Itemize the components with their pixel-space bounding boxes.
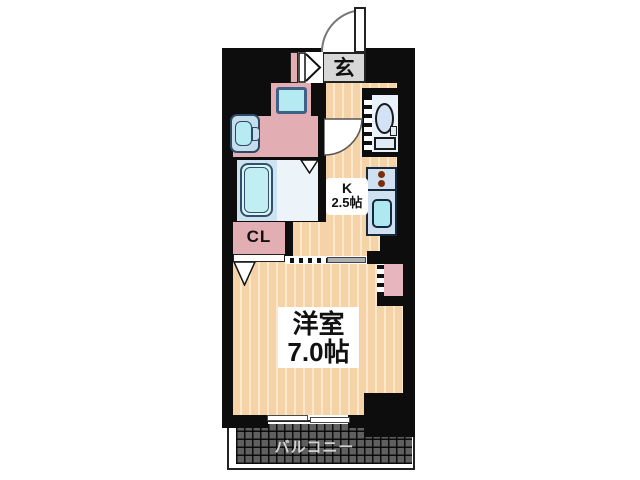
window-pane-right bbox=[310, 417, 350, 423]
wash-basin-bowl bbox=[235, 121, 252, 146]
sliding-door-panel bbox=[327, 257, 366, 263]
pillar bbox=[364, 393, 415, 437]
fridge-open-side bbox=[377, 264, 384, 296]
washroom-jamb bbox=[290, 52, 298, 83]
bottom-wall-left bbox=[222, 415, 268, 428]
toilet-handle bbox=[390, 126, 397, 136]
room-door-swing-icon bbox=[233, 262, 256, 286]
stove-burner-icon bbox=[378, 180, 385, 187]
toilet-tank bbox=[374, 137, 396, 150]
fridge-wall-bottom bbox=[377, 296, 415, 306]
kitchen-sink bbox=[372, 199, 392, 228]
bathtub-inner bbox=[244, 167, 269, 213]
washing-machine bbox=[276, 87, 307, 114]
room-label: 洋室 bbox=[278, 310, 359, 339]
entrance-door-leaf bbox=[354, 7, 366, 53]
kitchen-floor-lower bbox=[293, 222, 326, 257]
kitchen-size-label: 2.5帖 bbox=[326, 196, 368, 210]
balcony-label: バルコニー bbox=[262, 436, 367, 457]
floor-plan: バルコニー 玄 K 2.5帖 bbox=[0, 0, 640, 480]
refrigerator-space bbox=[384, 264, 403, 296]
fridge-wall-top bbox=[367, 251, 415, 264]
room-size-label: 7.0帖 bbox=[278, 338, 359, 367]
closet-door bbox=[233, 254, 285, 262]
counter-divider bbox=[368, 189, 395, 191]
closet-label: CL bbox=[233, 228, 285, 247]
sliding-door-dashes bbox=[290, 258, 327, 263]
toilet-door-arc-icon bbox=[324, 117, 364, 156]
stove-burner-icon bbox=[378, 171, 385, 178]
toilet-door bbox=[364, 100, 372, 150]
folding-door-icon bbox=[298, 52, 323, 83]
genkan-label: 玄 bbox=[322, 57, 366, 80]
window-pane-left bbox=[267, 415, 308, 421]
bathroom-door-swing-icon bbox=[300, 160, 319, 174]
wash-basin-counter bbox=[252, 127, 260, 141]
